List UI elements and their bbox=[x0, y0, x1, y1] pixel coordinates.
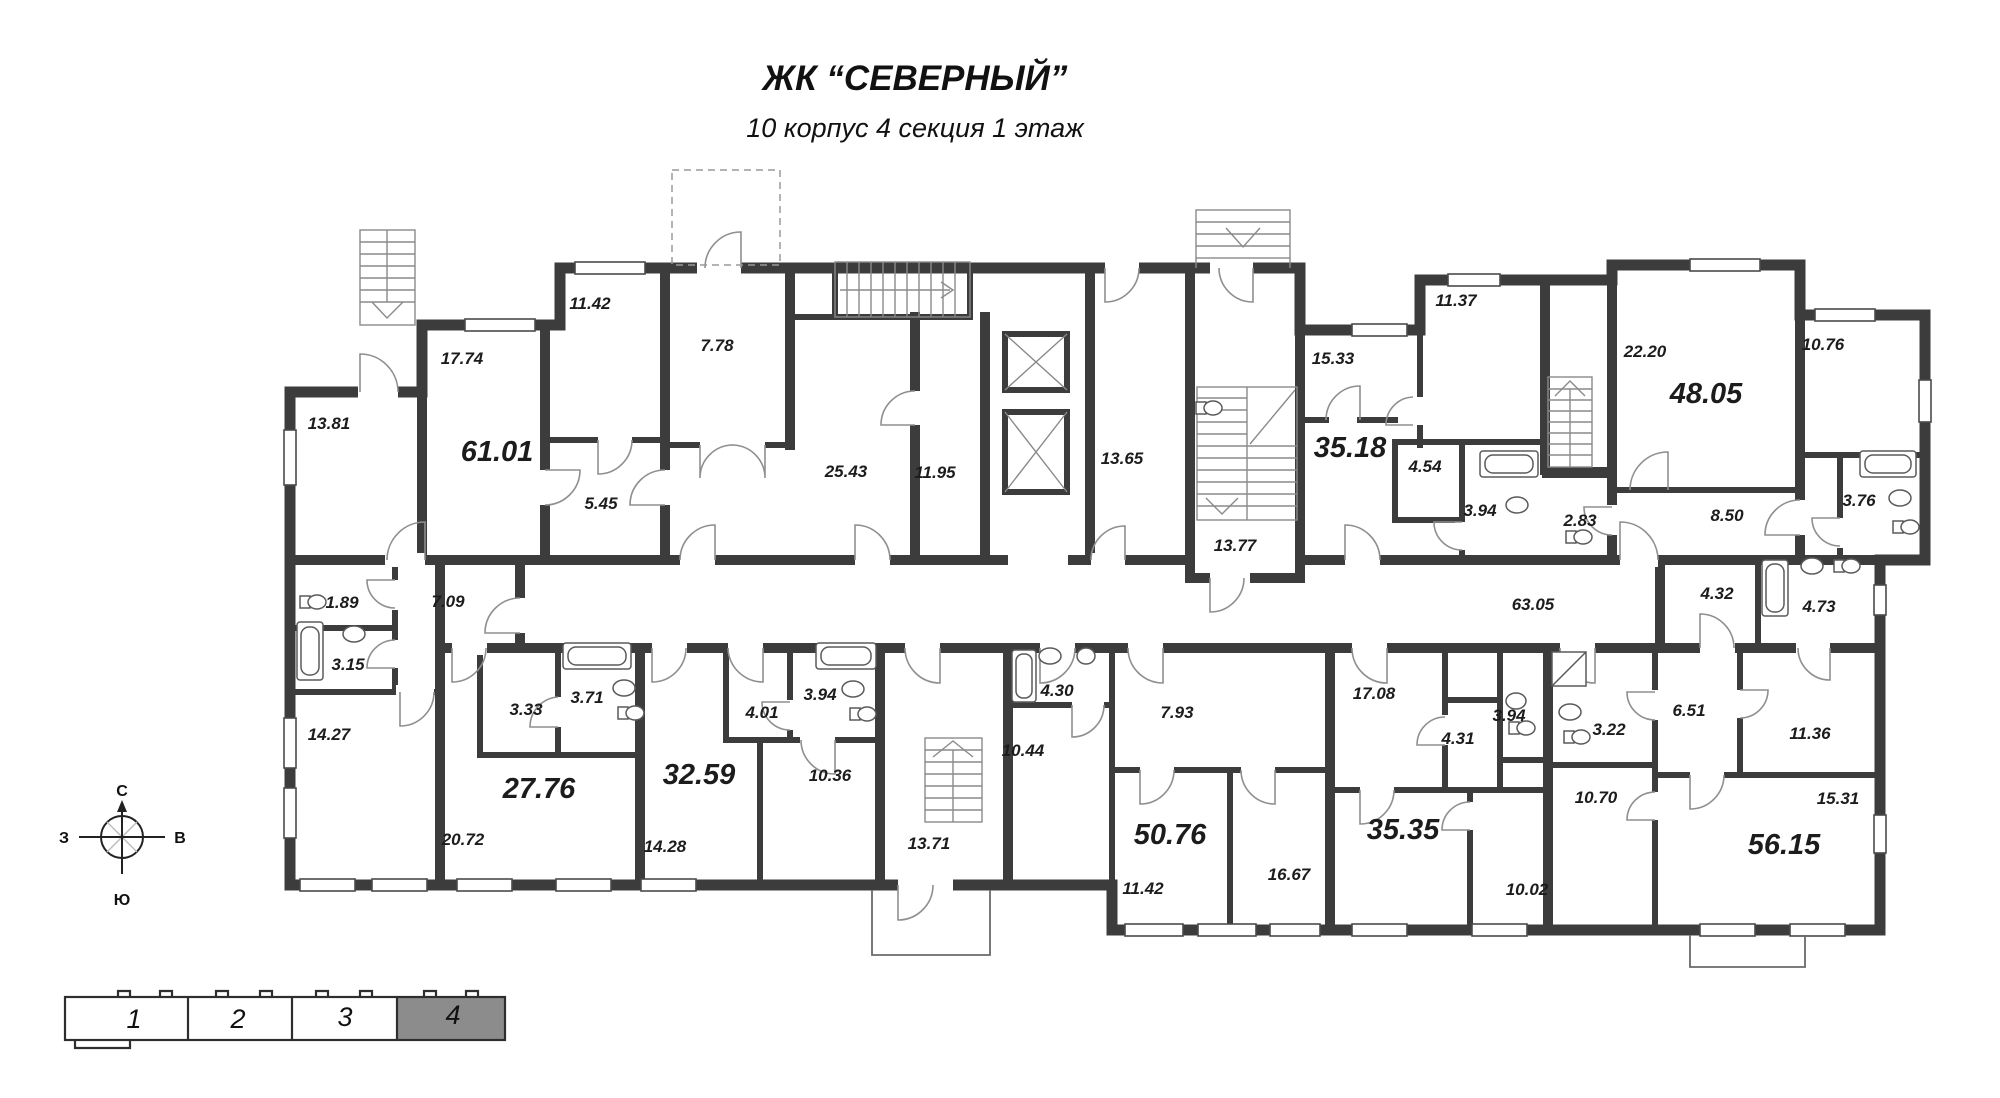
door-arcs bbox=[360, 232, 1840, 920]
room-area: 11.42 bbox=[1122, 879, 1164, 898]
keyplan-section-2-label: 2 bbox=[229, 1004, 245, 1034]
room-area: 4.32 bbox=[1699, 584, 1734, 603]
elevator-shaft-lower bbox=[1005, 412, 1067, 492]
room-area: 13.71 bbox=[908, 834, 951, 853]
key-plan: 1 2 3 4 bbox=[65, 991, 505, 1048]
room-area: 48.05 bbox=[1669, 378, 1743, 410]
compass-north-label: С bbox=[116, 783, 128, 800]
floor-plan-drawing: 13.81 17.74 61.01 11.42 5.45 7.78 25.43 … bbox=[0, 0, 2000, 1098]
room-area: 7.09 bbox=[431, 592, 465, 611]
compass-south-label: Ю bbox=[114, 892, 131, 909]
room-area: 3.94 bbox=[1492, 706, 1526, 725]
room-area: 35.18 bbox=[1314, 432, 1387, 464]
porch-bottom-center bbox=[872, 890, 990, 955]
room-area: 3.33 bbox=[509, 700, 543, 719]
room-area: 4.31 bbox=[1440, 729, 1474, 748]
keyplan-section-3-label: 3 bbox=[337, 1002, 352, 1032]
room-area: 7.93 bbox=[1160, 703, 1194, 722]
toilet-icon bbox=[300, 595, 326, 609]
room-area: 56.15 bbox=[1748, 829, 1821, 861]
room-area: 3.94 bbox=[1463, 501, 1497, 520]
compass-east-label: В bbox=[174, 830, 186, 847]
keyplan-section-4-label: 4 bbox=[445, 1000, 460, 1030]
room-area: 3.94 bbox=[803, 685, 837, 704]
room-area: 1.89 bbox=[325, 593, 359, 612]
compass-north-arrow-icon bbox=[117, 800, 127, 812]
toilet-icon bbox=[1566, 530, 1592, 544]
toilet-icon bbox=[1893, 520, 1919, 534]
room-area: 11.95 bbox=[914, 463, 956, 482]
room-area: 11.36 bbox=[1789, 724, 1831, 743]
room-area: 15.31 bbox=[1817, 789, 1860, 808]
room-area: 10.70 bbox=[1575, 788, 1618, 807]
shower-icon bbox=[1552, 652, 1586, 686]
room-area: 35.35 bbox=[1367, 814, 1440, 846]
sink-icon bbox=[1801, 558, 1823, 574]
toilet-icon bbox=[1196, 401, 1222, 415]
room-area: 4.01 bbox=[744, 703, 778, 722]
room-area: 61.01 bbox=[461, 436, 534, 468]
room-area: 50.76 bbox=[1134, 819, 1207, 851]
room-area: 22.20 bbox=[1623, 342, 1667, 361]
room-area: 10.76 bbox=[1802, 335, 1845, 354]
room-area: 7.78 bbox=[700, 336, 734, 355]
staircase-right-48 bbox=[1548, 377, 1592, 467]
balcony-outline bbox=[672, 170, 780, 265]
room-area: 3.15 bbox=[331, 655, 365, 674]
room-area: 14.28 bbox=[644, 837, 687, 856]
room-area: 17.08 bbox=[1353, 684, 1396, 703]
room-area: 16.67 bbox=[1268, 865, 1312, 884]
room-area: 3.71 bbox=[570, 688, 603, 707]
windows bbox=[284, 259, 1931, 936]
room-area: 4.30 bbox=[1039, 681, 1074, 700]
walls bbox=[290, 265, 1925, 930]
room-area: 27.76 bbox=[502, 773, 576, 805]
room-area: 11.37 bbox=[1435, 291, 1478, 310]
page-subtitle: 10 корпус 4 секция 1 этаж bbox=[746, 113, 1085, 143]
sink-icon bbox=[1506, 497, 1528, 513]
room-area: 17.74 bbox=[441, 349, 484, 368]
bathtub-icon bbox=[1480, 451, 1538, 477]
room-area: 2.83 bbox=[1562, 511, 1597, 530]
sink-icon bbox=[1889, 490, 1911, 506]
sink-icon bbox=[1559, 704, 1581, 720]
keyplan-section-1-label: 1 bbox=[126, 1004, 141, 1034]
page-title: ЖК “СЕВЕРНЫЙ” bbox=[761, 57, 1068, 98]
toilet-icon bbox=[850, 707, 876, 721]
compass-rose: С Ю З В bbox=[59, 783, 186, 909]
floor-plan-page: 13.81 17.74 61.01 11.42 5.45 7.78 25.43 … bbox=[0, 0, 2000, 1098]
bathtub-icon bbox=[563, 643, 631, 669]
room-area: 4.54 bbox=[1407, 457, 1442, 476]
staircase-top-left bbox=[360, 230, 415, 325]
room-area: 3.76 bbox=[1842, 491, 1876, 510]
room-area: 13.77 bbox=[1214, 536, 1258, 555]
bathtub-icon bbox=[297, 622, 323, 680]
sink-icon bbox=[842, 681, 864, 697]
bathtub-icon bbox=[1860, 451, 1916, 477]
toilet-icon bbox=[618, 706, 644, 720]
room-area: 13.81 bbox=[308, 414, 351, 433]
room-area: 6.51 bbox=[1672, 701, 1705, 720]
room-area: 8.50 bbox=[1710, 506, 1744, 525]
room-area: 10.44 bbox=[1002, 741, 1045, 760]
room-area: 32.59 bbox=[663, 759, 736, 791]
entrance-stair-top bbox=[1196, 210, 1290, 268]
room-area: 10.36 bbox=[809, 766, 852, 785]
room-area: 63.05 bbox=[1512, 595, 1555, 614]
plan-title: ЖК “СЕВЕРНЫЙ” 10 корпус 4 секция 1 этаж bbox=[746, 57, 1085, 143]
room-area: 14.27 bbox=[308, 725, 352, 744]
bathtub-icon bbox=[816, 643, 876, 669]
toilet-icon bbox=[1834, 559, 1860, 573]
sink-icon bbox=[343, 626, 365, 642]
sink-icon bbox=[613, 680, 635, 696]
toilet-icon bbox=[1564, 730, 1590, 744]
bathtub-icon bbox=[1762, 560, 1788, 616]
room-area: 10.02 bbox=[1506, 880, 1549, 899]
room-area: 3.22 bbox=[1592, 720, 1626, 739]
compass-west-label: З bbox=[59, 830, 69, 847]
room-area: 15.33 bbox=[1312, 349, 1355, 368]
porch-bottom-right bbox=[1690, 935, 1805, 967]
room-area: 13.65 bbox=[1101, 449, 1144, 468]
room-area: 20.72 bbox=[441, 830, 485, 849]
room-area: 25.43 bbox=[824, 462, 868, 481]
room-area: 11.42 bbox=[569, 294, 611, 313]
room-area: 4.73 bbox=[1801, 597, 1836, 616]
bathtub-icon bbox=[1012, 650, 1036, 702]
elevator-shaft-upper bbox=[1005, 334, 1067, 390]
room-area: 5.45 bbox=[584, 494, 618, 513]
staircase-bottom-13-71 bbox=[925, 738, 982, 822]
